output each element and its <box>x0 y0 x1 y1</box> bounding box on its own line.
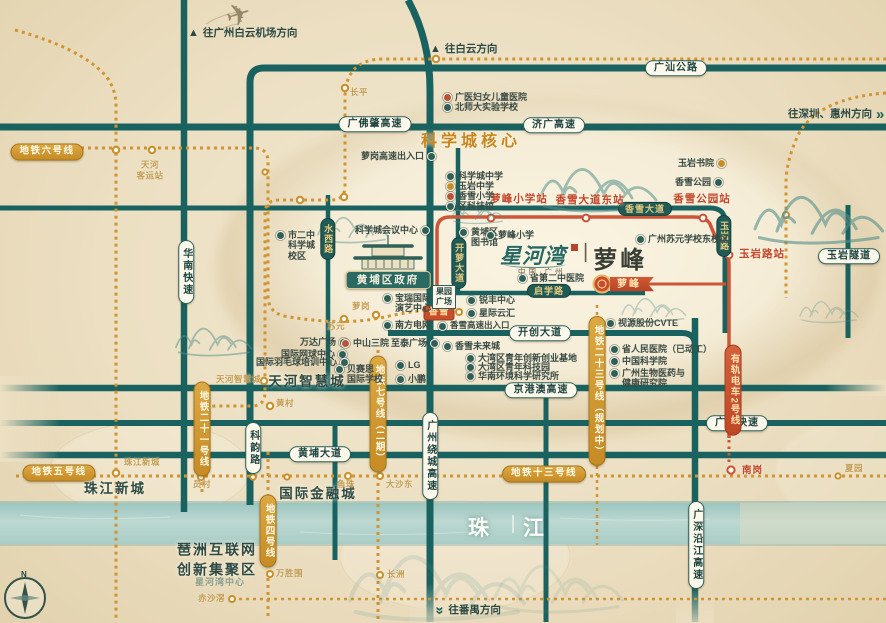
government-badge-huangpu: 黄埔区政府 <box>346 271 431 289</box>
road-pill-guangfozhao-gaosu-text: 广佛肇高速 <box>348 118 403 129</box>
project-ribbon-luofeng: 萝峰 <box>610 277 654 292</box>
direction-shenzhen-huizhou: 往深圳、惠州方向» <box>788 107 882 122</box>
poi-gz-biomedicine-health-institute: 广州生物医药与健康研究院 <box>610 368 685 389</box>
road-pill-jiguang-gaosu: 济广高速 <box>523 117 585 133</box>
science-city-core-label-text: 科学城核心 <box>421 133 521 150</box>
poi-district-science-museum-icon <box>446 202 455 211</box>
poi-basis-intl-school: 贝赛思国际学校 <box>335 364 383 385</box>
metro-badge-line23-planned: 地铁二十三号线（规划中） <box>589 316 606 466</box>
river-label-divider <box>512 515 514 533</box>
poi-baorui-performing-arts-center-line: 宝瑞国际 <box>395 293 431 303</box>
station-label-luofeng-xiaoxue-text: 萝峰小学站 <box>490 193 548 205</box>
poi-guoyuan-plaza-line: 广场 <box>436 297 452 307</box>
station-label-yuyan-lu: 玉岩路站 <box>739 248 785 260</box>
poi-luogang-expressway-entrance-text: 萝岗高速出入口 <box>361 151 424 161</box>
road-pill-yuyan-suidao: 玉岩隧道 <box>818 248 880 264</box>
poi-wanda-plaza-text: 万达广场 <box>300 337 336 347</box>
poi-basis-intl-school-line: 贝赛思 <box>347 364 383 374</box>
poi-southern-power-grid-icon <box>383 321 392 330</box>
station-label-luofeng-xiaoxue: 萝峰小学站 <box>490 193 548 205</box>
poi-guoyuan-plaza-line: 果园 <box>436 287 452 297</box>
poi-luogang-expressway-entrance-icon <box>427 152 436 161</box>
direction-baiyun-arrow-icon: ▲ <box>430 44 441 55</box>
poi-xiangxue-primary-school-text: 香雪小学 <box>458 191 494 201</box>
road-pill-qixue-lu-text: 启学路 <box>534 286 564 296</box>
station-faint-luogang: 萝岗 <box>352 302 370 312</box>
road-pill-huangpu-dadao-text: 黄埔大道 <box>298 448 342 459</box>
science-city-core-label: 科学城核心 <box>421 133 521 151</box>
poi-xiangxue-expressway-entrance: 香雪高速出入口 <box>438 321 510 331</box>
poi-guangyi-womens-childrens-hospital-icon <box>443 93 452 102</box>
station-faint-xiayuan-text: 夏园 <box>845 463 863 473</box>
poi-xiangxue-expressway-entrance-text: 香雪高速出入口 <box>450 320 510 330</box>
poi-luofeng-primary-school: 萝峰小学 <box>486 230 534 240</box>
river-label: 珠江 <box>468 512 578 542</box>
metro-badge-line21-text: 地铁二十一号线 <box>197 391 208 468</box>
poi-south-china-environment-institute-text: 华南环境科学研究所 <box>478 371 559 381</box>
road-pill-guangshan-gonglu-text: 广汕公路 <box>654 62 698 73</box>
road-pill-huanan-kuaisu: 华南快速 <box>178 240 194 304</box>
station-faint-dashadong-text: 大沙东 <box>386 479 413 489</box>
poi-xpeng: 小鹏 <box>396 374 426 384</box>
poi-cvte-icon <box>606 319 615 328</box>
direction-panyu: »往番禺方向 <box>436 603 501 618</box>
metro-badge-line13-text: 地铁十三号线 <box>511 468 577 479</box>
poi-science-city-middle-school-icon <box>446 172 455 181</box>
project-marker-icon <box>593 275 612 294</box>
station-faint-tianhe-coach-terminal-line: 天河 <box>136 159 163 170</box>
road-pill-jinggangao-gaosu: 京港澳高速 <box>505 382 578 398</box>
poi-chinese-academy-of-sciences: 中国科学院 <box>610 356 667 366</box>
station-faint-tianhe-zhihuicheng: 天河智慧城 <box>216 375 261 385</box>
poi-chinese-academy-of-sciences-icon <box>610 357 619 366</box>
poi-gz-biomedicine-health-institute-icon <box>610 369 619 378</box>
station-faint-changping-text: 长平 <box>350 87 368 97</box>
poi-intl-badminton-training-center-text: 国际羽毛球培训中心 <box>256 357 337 367</box>
logo-divider: | <box>583 241 588 264</box>
poi-yuyan-academy-text: 玉岩书院 <box>678 158 714 168</box>
location-map: 广汕公路广佛肇高速济广高速开创大道京港澳高速广园快速黄埔大道玉岩隧道华南快速科韵… <box>0 0 886 623</box>
poi-xiangxue-future-city-icon <box>443 342 452 351</box>
station-faint-chishajiao: 赤沙滘 <box>198 594 225 604</box>
road-pill-guangzhou-raocheng-gaosu-text: 广州绕城高速 <box>425 420 436 492</box>
station-label-xiangxue-dadao-dong-text: 香雪大道东站 <box>556 194 625 206</box>
poi-luofeng-primary-school-text: 萝峰小学 <box>498 230 534 240</box>
poi-chinese-academy-of-sciences-text: 中国科学院 <box>622 356 667 366</box>
station-faint-wanshengwei-text: 万胜围 <box>276 568 303 578</box>
road-pill-yuyan-suidao-text: 玉岩隧道 <box>827 250 871 261</box>
station-label-nangang: 南岗 <box>742 466 763 477</box>
brand-watermark: 星河湾中心 <box>195 577 245 587</box>
poi-southern-power-grid-text: 南方电网 <box>395 320 431 330</box>
poi-zhongshan-third-hospital-icon <box>341 339 350 348</box>
direction-panyu-arrow-icon: » <box>433 606 448 614</box>
poi-basis-intl-school-icon <box>335 365 344 374</box>
metro-badge-line21: 地铁二十一号线 <box>194 382 211 477</box>
project-ribbon-luofeng-text: 萝峰 <box>617 278 641 289</box>
station-label-xiangxue-dadao-dong: 香雪大道东站 <box>556 194 625 206</box>
poi-huangpu-library-icon <box>459 228 468 237</box>
road-pill-jiguang-gaosu-text: 济广高速 <box>532 119 576 130</box>
metro-badge-line6-text: 地铁六号线 <box>19 146 74 157</box>
station-label-xiangxue-gongyuan-text: 香雪公园站 <box>673 193 731 205</box>
poi-baorui-performing-arts-center-icon <box>383 294 392 303</box>
metro-badge-line5: 地铁五号线 <box>22 465 95 482</box>
road-pill-huangpu-dadao: 黄埔大道 <box>289 446 351 462</box>
poi-cvte-text: 视源股份CVTE <box>618 318 678 328</box>
poi-provincial-peoples-hospital-icon <box>610 345 619 354</box>
poi-ruifeng-center-text: 锐丰中心 <box>479 295 515 305</box>
poi-cvte: 视源股份CVTE <box>606 318 678 328</box>
station-label-yuyan-lu-text: 玉岩路站 <box>739 248 785 260</box>
poi-basis-intl-school-line: 国际学校 <box>347 374 383 384</box>
poi-guangyi-womens-childrens-hospital-text: 广医妇女儿童医院 <box>455 92 527 102</box>
poi-yuyan-academy: 玉岩书院 <box>678 158 726 168</box>
poi-science-city-convention-center-text: 科学城会议中心 <box>355 225 418 235</box>
district-zhujiang-xincheng-text: 珠江新城 <box>84 481 146 496</box>
poi-zhongshan-third-hospital-text: 中山三院 <box>353 338 389 348</box>
station-faint-huangcun: 黄村 <box>276 399 294 409</box>
poi-xiangxue-future-city-text: 香雪未来城 <box>455 341 500 351</box>
road-pill-kailuo-dadao-text: 开萝大道 <box>454 243 464 283</box>
government-badge-huangpu-text: 黄埔区政府 <box>357 274 420 286</box>
road-pill-xiangxue-dadao-text: 香雪大道 <box>625 204 665 214</box>
road-pill-xiangxue-dadao: 香雪大道 <box>618 202 672 216</box>
station-faint-tianhe-zhihuicheng-text: 天河智慧城 <box>216 374 261 384</box>
tram-badge-line2-text: 有轨电车2号线 <box>728 354 739 427</box>
poi-lg: LG <box>396 360 421 370</box>
poi-science-city-middle-school-text: 科学城中学 <box>458 171 503 181</box>
poi-xiangxue-park: 香雪公园 <box>675 177 723 187</box>
poi-ruifeng-center-icon <box>467 296 476 305</box>
logo-subtitle: 中国·广州 <box>518 266 566 277</box>
station-faint-yuzhu: 鱼珠 <box>337 480 355 490</box>
logo-name-luofeng: 萝峰 <box>593 240 647 275</box>
station-faint-yuzhu-text: 鱼珠 <box>337 479 355 489</box>
compass-north-label: N <box>21 570 27 579</box>
poi-yuyan-academy-icon <box>717 159 726 168</box>
road-pill-qixue-lu: 启学路 <box>527 284 571 298</box>
logo-seal-icon <box>571 244 578 251</box>
poi-xingji-yunhui-icon <box>467 309 476 318</box>
poi-south-china-environment-institute-icon <box>466 372 475 381</box>
poi-yuyan-middle-school: 玉岩中学 <box>446 181 494 191</box>
poi-xiangxue-future-city: 香雪未来城 <box>443 341 500 351</box>
poi-district-science-museum-text: 区科技馆 <box>458 201 494 211</box>
poi-xpeng-icon <box>396 375 405 384</box>
station-faint-wanshengwei: 万胜围 <box>276 569 303 579</box>
poi-ruifeng-center: 锐丰中心 <box>467 295 515 305</box>
poi-guoyuan-plaza: 果园广场 <box>432 285 456 309</box>
map-labels-layer: 广汕公路广佛肇高速济广高速开创大道京港澳高速广园快速黄埔大道玉岩隧道华南快速科韵… <box>0 0 886 623</box>
road-pill-huanan-kuaisu-text: 华南快速 <box>181 248 192 296</box>
road-pill-guangshan-gonglu: 广汕公路 <box>645 60 707 76</box>
direction-shenzhen-huizhou-arrow-icon: » <box>876 107 882 122</box>
direction-baiyun: ▲往白云方向 <box>430 43 497 55</box>
district-pazhou-cluster-line: 琶洲互联网 <box>177 540 257 560</box>
direction-baiyun-airport-arrow-icon: ▲ <box>188 28 199 39</box>
station-faint-suyuan-text: 苏元 <box>327 321 345 331</box>
road-pill-shuixi-lu-text: 水西路 <box>323 224 333 254</box>
station-faint-chishajiao-text: 赤沙滘 <box>198 593 225 603</box>
station-faint-tianhe-coach-terminal: 天河客运站 <box>136 159 163 180</box>
road-pill-keyun-lu: 科韵路 <box>245 422 261 474</box>
road-pill-kaichuang-dadao: 开创大道 <box>509 325 571 341</box>
poi-luofeng-primary-school-icon <box>486 231 495 240</box>
poi-guangyi-womens-childrens-hospital: 广医妇女儿童医院 <box>443 92 527 102</box>
poi-zhongshan-third-hospital: 中山三院 <box>341 338 389 348</box>
station-faint-changzhou: 长洲 <box>387 570 405 580</box>
direction-baiyun-text: 往白云方向 <box>445 43 498 55</box>
station-faint-yuancun: 员村 <box>193 480 211 490</box>
poi-luogang-expressway-entrance: 萝岗高速出入口 <box>361 151 436 161</box>
road-pill-guangfozhao-gaosu: 广佛肇高速 <box>339 116 412 132</box>
station-faint-changping: 长平 <box>350 88 368 98</box>
district-zhujiang-xincheng: 珠江新城 <box>84 481 146 497</box>
station-faint-suyuan: 苏元 <box>327 322 345 332</box>
poi-lg-icon <box>396 361 405 370</box>
poi-xiangxue-primary-school-icon <box>446 192 455 201</box>
poi-xiangxue-park-text: 香雪公园 <box>675 177 711 187</box>
poi-baorui-performing-arts-center-line: 演艺中心 <box>395 303 431 313</box>
poi-suyuan-school-east-campus-text: 广州苏元学校东校区 <box>648 234 729 244</box>
poi-beishida-experimental-school-text: 北师大实验学校 <box>455 102 518 112</box>
poi-gz-biomedicine-health-institute-line: 健康研究院 <box>622 378 685 388</box>
metro-badge-line4: 地铁四号线 <box>260 495 277 568</box>
poi-no2-middle-school-campus-line: 市二中 <box>288 230 315 240</box>
poi-science-city-middle-school: 科学城中学 <box>446 171 503 181</box>
brand-watermark-text: 星河湾中心 <box>195 577 245 587</box>
road-pill-guangzhou-raocheng-gaosu: 广州绕城高速 <box>422 412 438 500</box>
station-faint-dashadong: 大沙东 <box>386 480 413 490</box>
poi-gz-biomedicine-health-institute-line: 广州生物医药与 <box>622 368 685 378</box>
district-pazhou-cluster: 琶洲互联网创新集聚区 <box>177 540 257 579</box>
station-faint-zhujiang-xincheng: 珠江新城 <box>124 458 160 468</box>
poi-suyuan-school-east-campus: 广州苏元学校东校区 <box>636 234 729 244</box>
station-faint-zhujiang-xincheng-text: 珠江新城 <box>124 457 160 467</box>
road-pill-guangshen-yanjiang-gaosu-text: 广深沿江高速 <box>691 509 702 581</box>
poi-xiangxue-expressway-entrance-icon <box>438 322 447 331</box>
poi-provincial-peoples-hospital: 省人民医院（已动工） <box>610 344 712 354</box>
poi-xiangxue-park-icon <box>714 178 723 187</box>
poi-no2-middle-school-campus-icon <box>276 231 285 240</box>
metro-badge-line13: 地铁十三号线 <box>502 466 586 483</box>
tram-badge-line2: 有轨电车2号线 <box>725 345 742 436</box>
road-pill-shuixi-lu: 水西路 <box>320 218 335 260</box>
poi-xingji-yunhui-text: 星际云汇 <box>479 308 515 318</box>
poi-provincial-peoples-hospital-text: 省人民医院（已动工） <box>622 344 712 354</box>
poi-zhitai-plaza-icon <box>430 339 439 348</box>
poi-beishida-experimental-school: 北师大实验学校 <box>443 102 518 112</box>
station-faint-tianhe-coach-terminal-line: 客运站 <box>136 170 163 181</box>
road-pill-kaichuang-dadao-text: 开创大道 <box>518 327 562 338</box>
poi-no2-middle-school-campus: 市二中科学城校区 <box>276 230 315 261</box>
road-pill-guangshen-yanjiang-gaosu: 广深沿江高速 <box>688 501 704 589</box>
poi-south-china-environment-institute: 华南环境科学研究所 <box>466 371 559 381</box>
poi-science-city-convention-center-icon <box>421 226 430 235</box>
station-faint-xiayuan: 夏园 <box>845 464 863 474</box>
poi-xiangxue-primary-school: 香雪小学 <box>446 191 494 201</box>
poi-yuyan-middle-school-text: 玉岩中学 <box>458 181 494 191</box>
poi-science-city-convention-center: 科学城会议中心 <box>355 225 430 235</box>
road-pill-jinggangao-gaosu-text: 京港澳高速 <box>514 384 569 395</box>
poi-lg-text: LG <box>408 360 421 370</box>
station-faint-luogang-text: 萝岗 <box>352 301 370 311</box>
metro-badge-line5-text: 地铁五号线 <box>31 467 86 478</box>
station-faint-huangcun-text: 黄村 <box>276 398 294 408</box>
station-label-nangang-text: 南岗 <box>742 465 763 476</box>
station-faint-yuancun-text: 员村 <box>193 479 211 489</box>
poi-no2-middle-school-campus-line: 校区 <box>288 251 315 261</box>
metro-badge-line6: 地铁六号线 <box>10 144 83 161</box>
poi-yuyan-middle-school-icon <box>446 182 455 191</box>
poi-baorui-performing-arts-center: 宝瑞国际演艺中心 <box>383 293 431 314</box>
poi-zhitai-plaza: 至泰广场 <box>391 338 439 348</box>
poi-zhitai-plaza-text: 至泰广场 <box>391 338 427 348</box>
poi-southern-power-grid: 南方电网 <box>383 320 431 330</box>
direction-shenzhen-huizhou-text: 往深圳、惠州方向 <box>788 108 872 120</box>
poi-xingji-yunhui: 星际云汇 <box>467 308 515 318</box>
poi-beishida-experimental-school-icon <box>443 103 452 112</box>
station-label-xiangxue-gongyuan: 香雪公园站 <box>673 193 731 205</box>
metro-badge-line23-planned-text: 地铁二十三号线（规划中） <box>592 325 603 457</box>
poi-district-science-museum: 区科技馆 <box>446 201 494 211</box>
poi-xpeng-text: 小鹏 <box>408 374 426 384</box>
metro-badge-line4-text: 地铁四号线 <box>263 504 274 559</box>
road-pill-keyun-lu-text: 科韵路 <box>248 430 259 466</box>
station-faint-changzhou-text: 长洲 <box>387 569 405 579</box>
poi-no2-middle-school-campus-line: 科学城 <box>288 240 315 250</box>
direction-panyu-text: 往番禺方向 <box>448 604 501 616</box>
